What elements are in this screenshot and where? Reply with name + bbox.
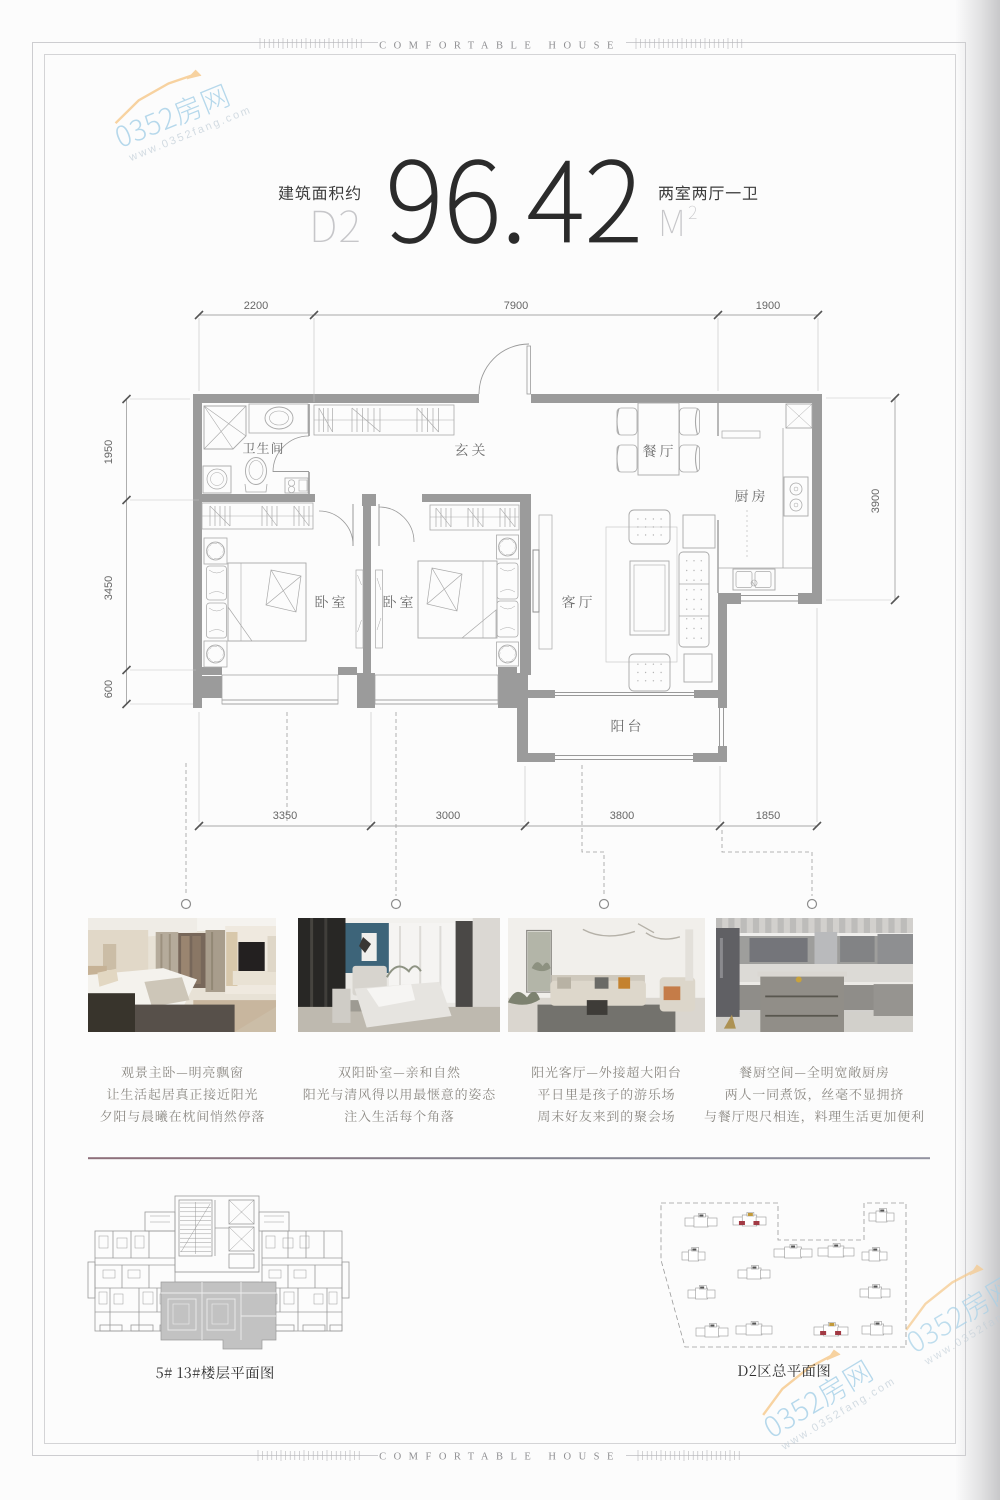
svg-text:3450: 3450 [103,576,115,600]
svg-text:3000: 3000 [436,810,460,822]
svg-text:600: 600 [103,680,115,698]
svg-text:3900: 3900 [870,489,882,513]
svg-text:1850: 1850 [756,810,780,822]
svg-text:COMFORTABLE HOUSE: COMFORTABLE HOUSE [379,1452,621,1463]
svg-text:3350: 3350 [273,810,297,822]
svg-text:COMFORTABLE HOUSE: COMFORTABLE HOUSE [379,41,621,52]
svg-text:1900: 1900 [756,300,780,312]
svg-text:2200: 2200 [244,300,268,312]
svg-text:3800: 3800 [610,810,634,822]
svg-text:1950: 1950 [103,440,115,464]
svg-text:7900: 7900 [504,300,528,312]
